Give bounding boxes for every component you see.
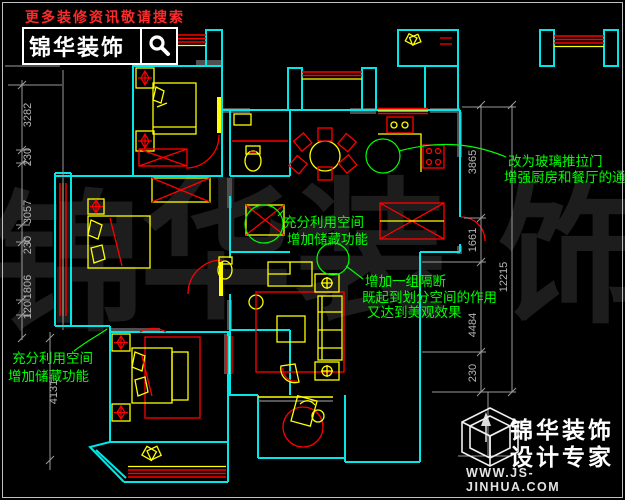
dim-value: 3282 xyxy=(22,103,34,127)
dim-value: 1806 xyxy=(22,275,34,299)
cad-floorplan-page: 锦 华 装 饰 更多装修资讯敬请搜索 锦华装饰 xyxy=(0,0,625,500)
search-icon xyxy=(142,34,176,58)
promo-text: 更多装修资讯敬请搜索 xyxy=(25,7,185,27)
dim-value: 120 xyxy=(22,301,34,319)
dim-value: 1661 xyxy=(467,228,479,252)
dim-value: 3057 xyxy=(22,200,34,224)
annotation-line: 改为玻璃推拉门 xyxy=(508,153,603,169)
dimension-lines xyxy=(5,66,516,470)
annotation-line: 增加储藏功能 xyxy=(287,232,368,247)
dimension-text: 3282 230 3057 230 1806 120 4131 3865 166… xyxy=(22,103,510,404)
annotation-line: 充分利用空间 xyxy=(12,351,93,366)
footer-url: WWW.JS-JINHUA.COM xyxy=(466,466,625,494)
brand-logo-text: 锦华装饰 xyxy=(24,30,140,62)
dim-value: 12215 xyxy=(498,262,510,293)
dim-value: 4484 xyxy=(467,313,479,337)
dim-value: 230 xyxy=(22,236,34,254)
dim-value: 230 xyxy=(467,364,479,382)
annotation-line: 既起到划分空间的作用 xyxy=(362,290,497,305)
dim-value: 4131 xyxy=(48,380,60,404)
annotation-line: 又达到美观效果 xyxy=(367,305,462,320)
brand-logo: 锦华装饰 xyxy=(22,27,178,65)
dim-value: 3865 xyxy=(467,150,479,174)
annotation-line: 充分利用空间 xyxy=(283,215,364,230)
dim-value: 230 xyxy=(22,148,34,166)
annotation-line: 增加一组隔断 xyxy=(365,274,446,289)
annotation-line: 增强厨房和餐厅的通 xyxy=(504,170,625,185)
